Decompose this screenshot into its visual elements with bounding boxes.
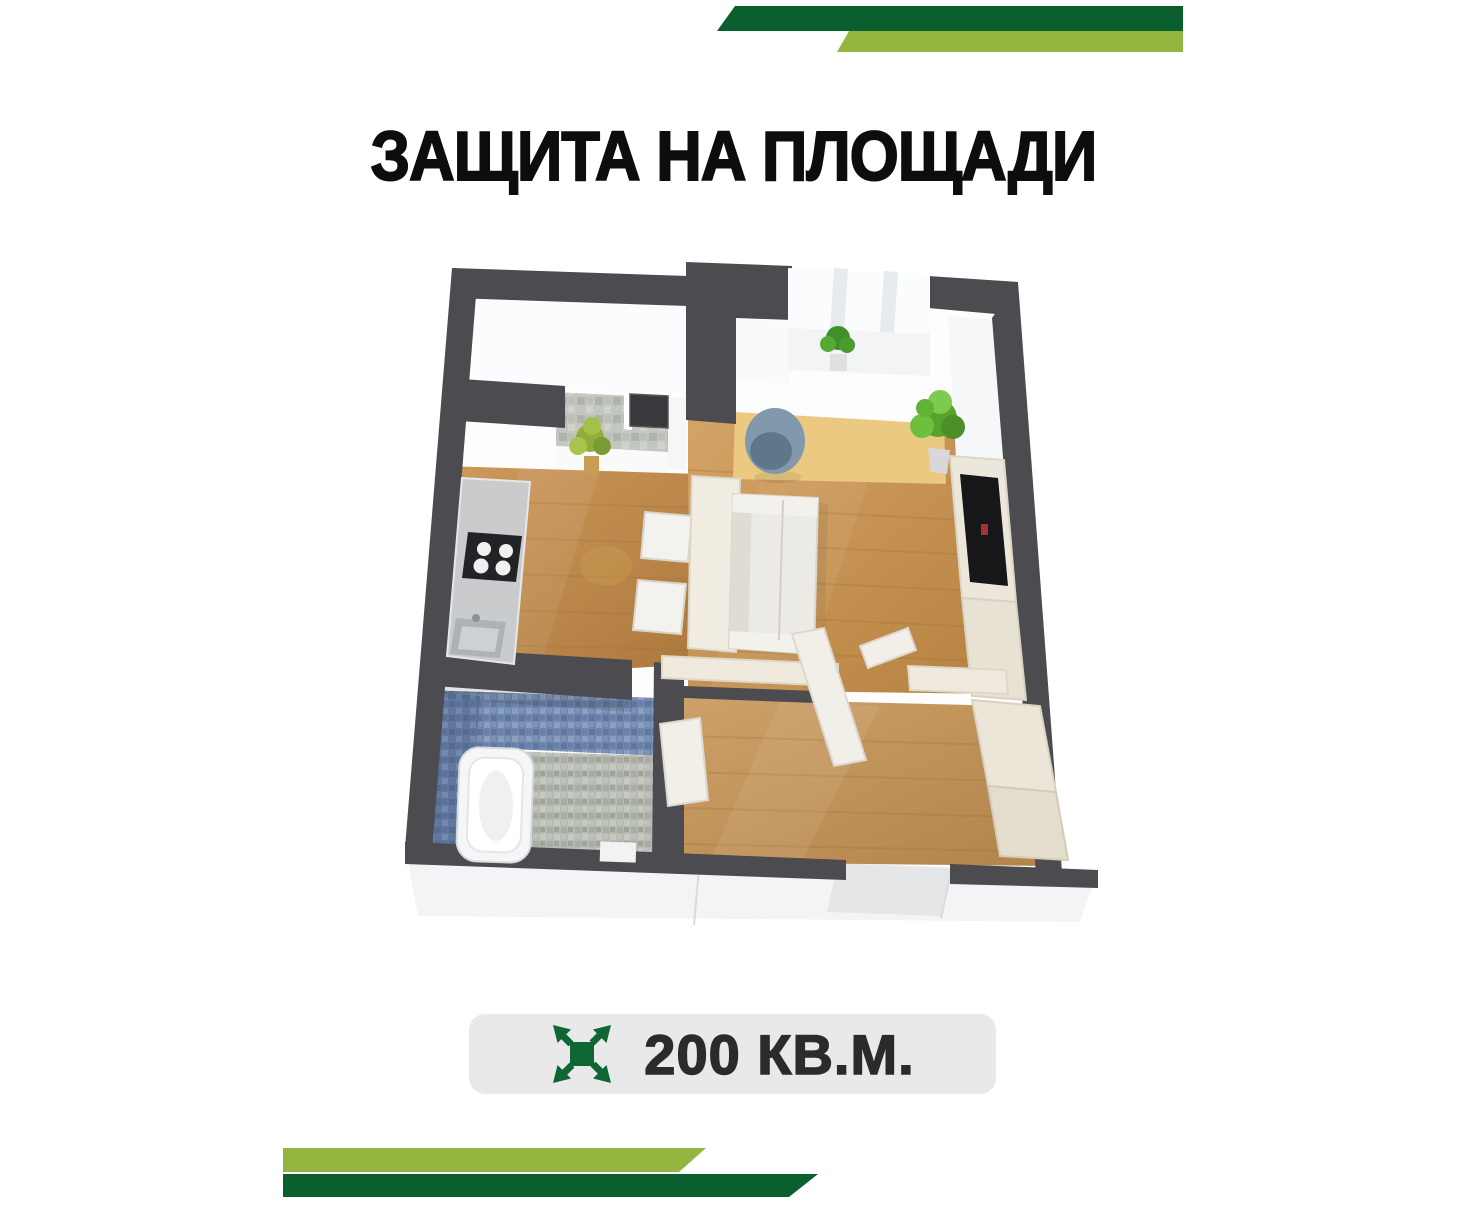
dining-chair — [641, 512, 692, 562]
expand-arrows-icon — [550, 1022, 614, 1086]
cooktop — [462, 532, 522, 582]
dining-chair — [633, 580, 686, 634]
area-value: 200 КВ.М. — [644, 1022, 914, 1087]
hallway-appliance — [624, 392, 668, 430]
bathtub — [456, 747, 534, 864]
area-badge: 200 КВ.М. — [469, 1014, 996, 1094]
poster-page: { "poster": { "title": "ЗАЩИТА НА ПЛОЩАД… — [0, 0, 1467, 1200]
window — [788, 268, 930, 376]
bath-mat — [600, 841, 637, 862]
